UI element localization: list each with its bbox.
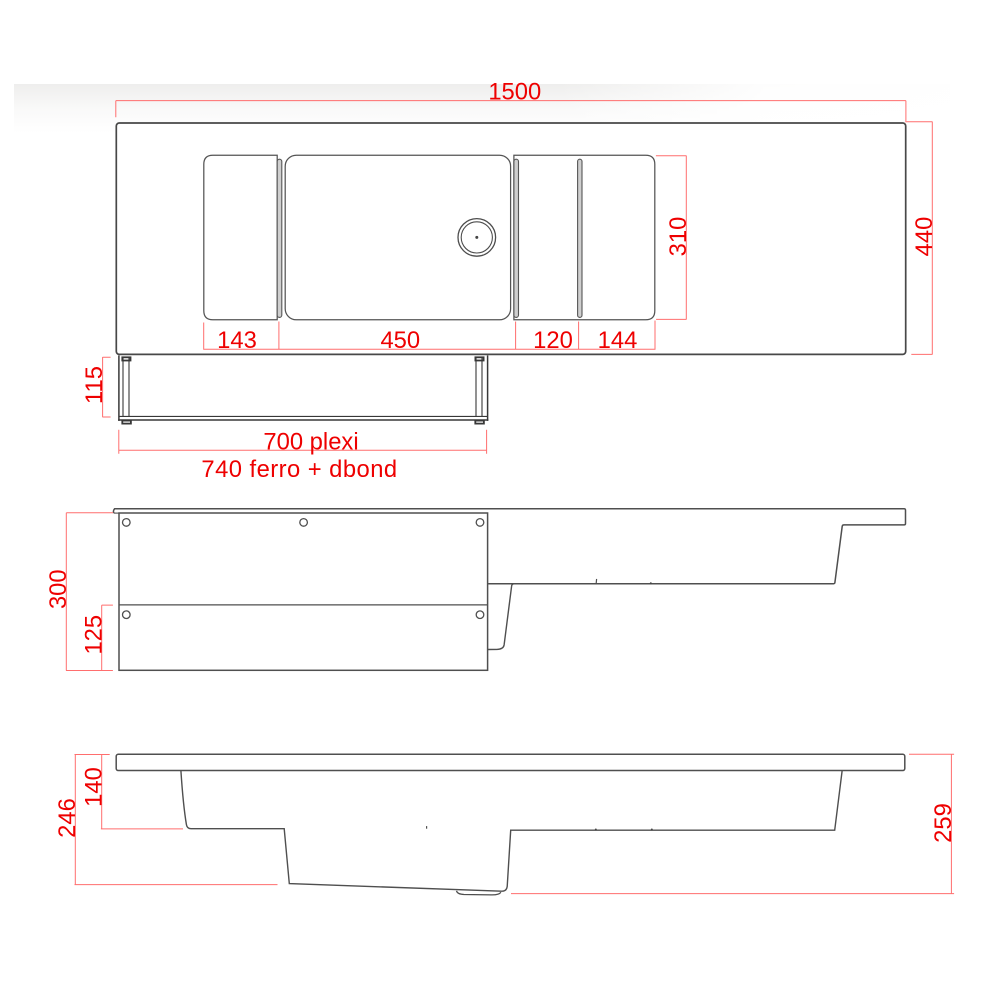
svg-text:120: 120 (533, 327, 573, 354)
svg-text:143: 143 (217, 327, 257, 354)
svg-text:700 plexi: 700 plexi (263, 428, 358, 455)
svg-text:140: 140 (80, 767, 107, 807)
svg-text:450: 450 (380, 327, 420, 354)
svg-text:740 ferro + dbond: 740 ferro + dbond (201, 456, 397, 483)
svg-text:300: 300 (45, 569, 72, 609)
svg-text:144: 144 (598, 327, 638, 354)
svg-text:246: 246 (54, 798, 81, 838)
svg-text:115: 115 (81, 366, 108, 404)
svg-text:440: 440 (911, 217, 938, 257)
svg-text:125: 125 (80, 615, 107, 655)
svg-text:1500: 1500 (488, 79, 541, 106)
svg-text:259: 259 (930, 803, 957, 843)
svg-text:310: 310 (665, 217, 692, 257)
